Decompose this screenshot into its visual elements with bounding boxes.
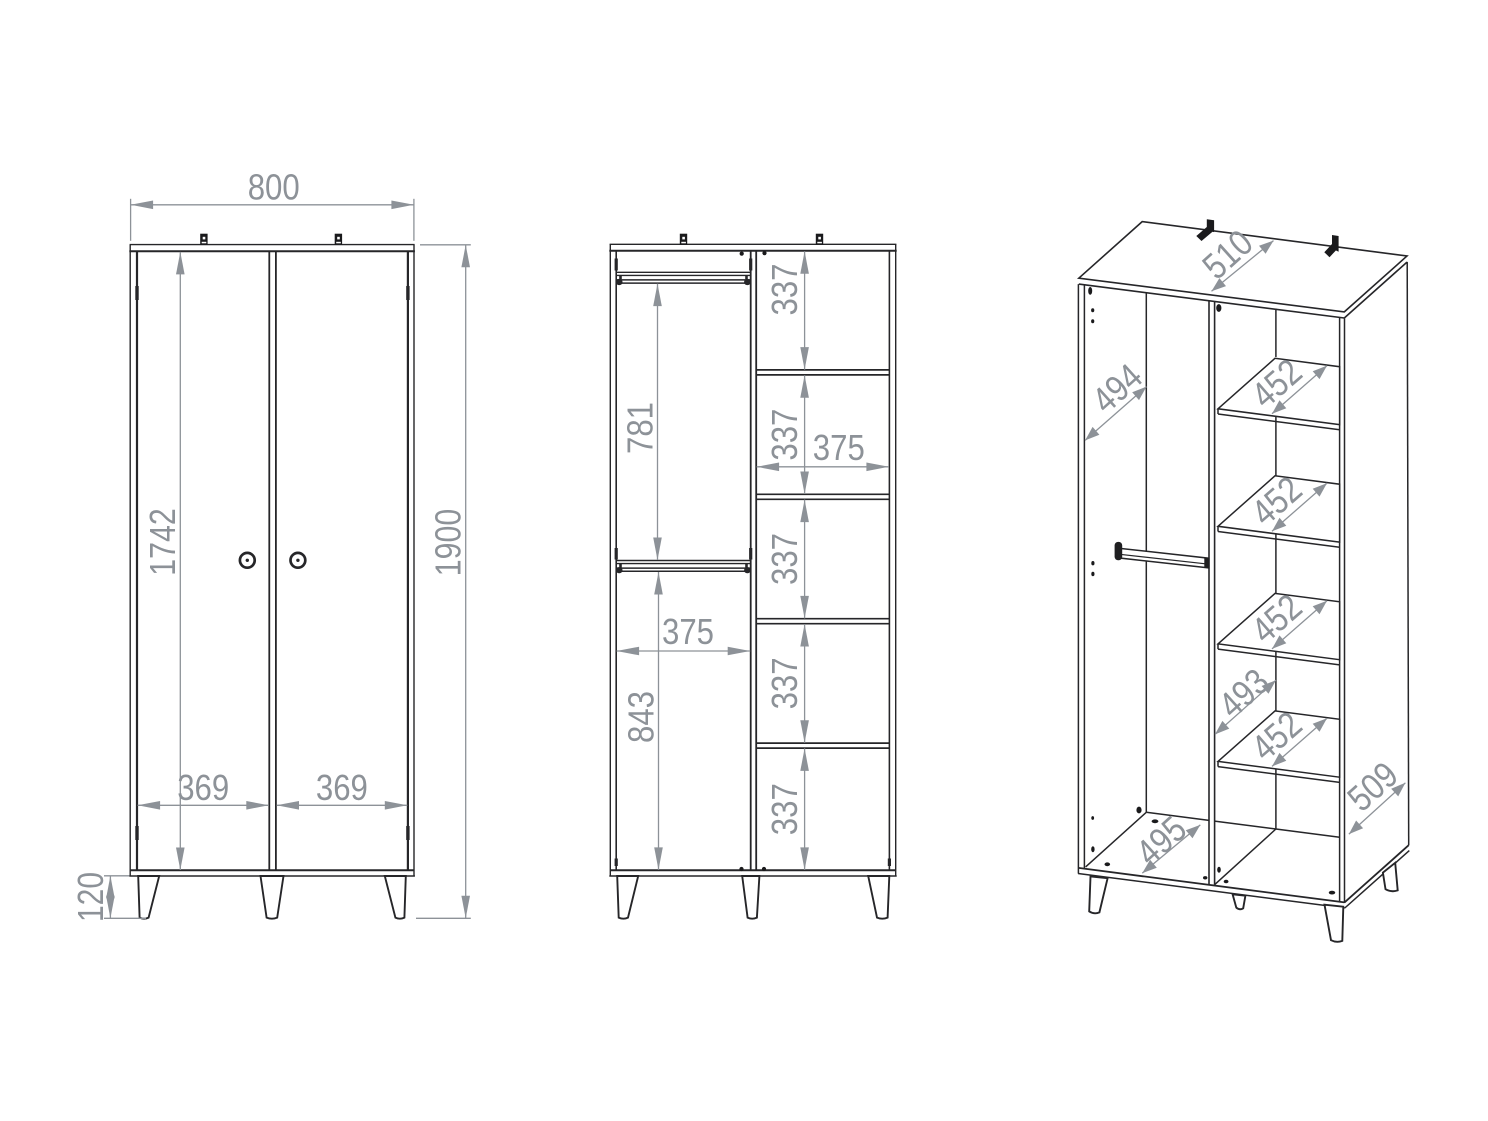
svg-text:337: 337 — [764, 657, 805, 709]
svg-text:337: 337 — [764, 409, 805, 461]
svg-text:1742: 1742 — [142, 508, 183, 576]
svg-text:375: 375 — [813, 427, 865, 468]
svg-text:781: 781 — [619, 402, 660, 454]
svg-text:337: 337 — [764, 264, 805, 316]
svg-text:843: 843 — [620, 691, 661, 743]
svg-text:1900: 1900 — [427, 509, 468, 577]
svg-text:369: 369 — [316, 767, 368, 808]
svg-text:800: 800 — [248, 166, 300, 207]
svg-text:337: 337 — [764, 783, 805, 835]
svg-text:120: 120 — [70, 872, 111, 922]
svg-text:375: 375 — [662, 611, 714, 652]
svg-text:369: 369 — [177, 767, 229, 808]
svg-text:337: 337 — [764, 533, 805, 585]
